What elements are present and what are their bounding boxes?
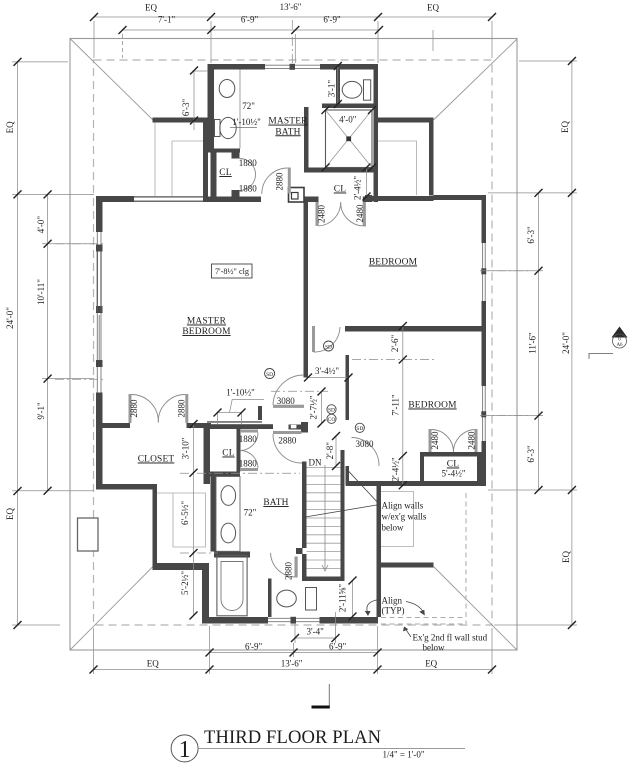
svg-text:EQ: EQ (147, 659, 159, 669)
svg-text:2880: 2880 (176, 399, 186, 418)
svg-text:24'-0": 24'-0" (5, 307, 15, 329)
svg-text:1880: 1880 (239, 434, 258, 444)
svg-text:1: 1 (179, 737, 191, 763)
svg-text:24'-0": 24'-0" (561, 332, 571, 354)
svg-text:EQ: EQ (560, 121, 570, 133)
svg-text:72": 72" (242, 101, 255, 111)
svg-text:3'-4": 3'-4" (307, 627, 325, 637)
svg-text:DN: DN (309, 458, 322, 468)
svg-text:MASTER: MASTER (187, 317, 227, 327)
svg-text:2880: 2880 (129, 399, 139, 418)
svg-text:A6: A6 (616, 343, 623, 348)
svg-text:2880: 2880 (278, 435, 297, 445)
svg-text:2'-8": 2'-8" (325, 442, 335, 460)
svg-text:5'-4½": 5'-4½" (441, 469, 465, 479)
svg-text:SD: SD (266, 372, 273, 378)
svg-text:6'-3": 6'-3" (526, 445, 536, 463)
svg-text:2480: 2480 (317, 205, 327, 224)
svg-text:EQ: EQ (427, 2, 439, 12)
svg-text:4'-0": 4'-0" (339, 115, 357, 125)
svg-text:6'-3": 6'-3" (181, 99, 191, 117)
svg-text:7'-8½" clg: 7'-8½" clg (215, 267, 249, 276)
svg-text:7'-11": 7'-11" (391, 394, 401, 416)
svg-text:11'-6": 11'-6" (528, 332, 538, 354)
svg-text:13'-6": 13'-6" (281, 659, 303, 669)
svg-text:7'-1": 7'-1" (158, 14, 176, 24)
svg-text:4'-0": 4'-0" (36, 216, 46, 234)
svg-text:CL: CL (222, 449, 234, 459)
svg-text:CO: CO (328, 417, 336, 423)
svg-text:BATH: BATH (263, 498, 288, 508)
svg-text:2480: 2480 (466, 431, 476, 450)
svg-text:EQ: EQ (425, 659, 437, 669)
svg-text:2'-6": 2'-6" (390, 335, 400, 353)
svg-text:2'-7½": 2'-7½" (309, 395, 319, 419)
svg-text:SD: SD (356, 426, 363, 432)
svg-text:3'-10": 3'-10" (181, 437, 191, 459)
svg-text:2480: 2480 (355, 204, 365, 223)
svg-text:3080: 3080 (277, 396, 296, 406)
svg-text:2'-4½": 2'-4½" (391, 457, 401, 481)
svg-text:10'-11": 10'-11" (36, 279, 46, 305)
svg-text:below: below (423, 643, 445, 653)
svg-text:CL: CL (219, 168, 231, 178)
svg-text:BATH: BATH (275, 127, 300, 137)
svg-text:2480: 2480 (430, 431, 440, 450)
svg-text:6'-9": 6'-9" (241, 14, 259, 24)
svg-text:72": 72" (244, 508, 257, 518)
svg-text:Align walls: Align walls (382, 501, 424, 511)
svg-text:6'-9": 6'-9" (245, 642, 263, 652)
svg-text:THIRD FLOOR PLAN: THIRD FLOOR PLAN (204, 727, 381, 748)
svg-text:1880: 1880 (239, 158, 258, 168)
svg-text:3'-1": 3'-1" (327, 80, 337, 98)
svg-text:BEDROOM: BEDROOM (408, 401, 457, 411)
svg-text:2'-11⅝": 2'-11⅝" (338, 584, 348, 613)
svg-text:w/ex'g walls: w/ex'g walls (382, 512, 427, 522)
svg-text:CL: CL (334, 185, 346, 195)
svg-text:1880: 1880 (239, 183, 258, 193)
svg-text:2880: 2880 (275, 172, 285, 191)
svg-text:SD: SD (328, 408, 335, 414)
svg-text:EQ: EQ (5, 508, 15, 520)
svg-text:1880: 1880 (239, 458, 258, 468)
svg-text:BEDROOM: BEDROOM (182, 327, 231, 337)
svg-text:BEDROOM: BEDROOM (369, 258, 418, 268)
svg-text:2'-4½": 2'-4½" (353, 176, 363, 200)
svg-text:6'-9": 6'-9" (329, 642, 347, 652)
svg-text:SD: SD (325, 344, 332, 350)
svg-text:EQ: EQ (145, 2, 157, 12)
svg-text:13'-6": 13'-6" (280, 2, 302, 12)
svg-text:2880: 2880 (284, 562, 294, 581)
svg-text:6'-3": 6'-3" (526, 226, 536, 244)
svg-text:5'-2½": 5'-2½" (180, 571, 190, 595)
svg-text:(TYP): (TYP) (382, 606, 405, 616)
svg-text:below: below (382, 523, 404, 533)
svg-text:3'-4½": 3'-4½" (315, 366, 339, 376)
svg-text:CLOSET: CLOSET (138, 455, 175, 465)
svg-text:1'-10½": 1'-10½" (226, 388, 255, 398)
svg-text:6'-5½": 6'-5½" (180, 501, 190, 525)
svg-text:9'-1": 9'-1" (36, 402, 46, 420)
svg-text:1'-10½": 1'-10½" (232, 117, 261, 127)
svg-text:MASTER: MASTER (268, 117, 308, 127)
svg-text:Align: Align (382, 596, 403, 606)
svg-text:EQ: EQ (561, 551, 571, 563)
svg-text:1/4" = 1'-0": 1/4" = 1'-0" (382, 750, 424, 760)
svg-text:EQ: EQ (5, 121, 15, 133)
svg-text:3080: 3080 (356, 439, 375, 449)
svg-text:6'-9": 6'-9" (323, 14, 341, 24)
svg-text:Ex'g 2nd fl wall stud: Ex'g 2nd fl wall stud (413, 633, 488, 643)
